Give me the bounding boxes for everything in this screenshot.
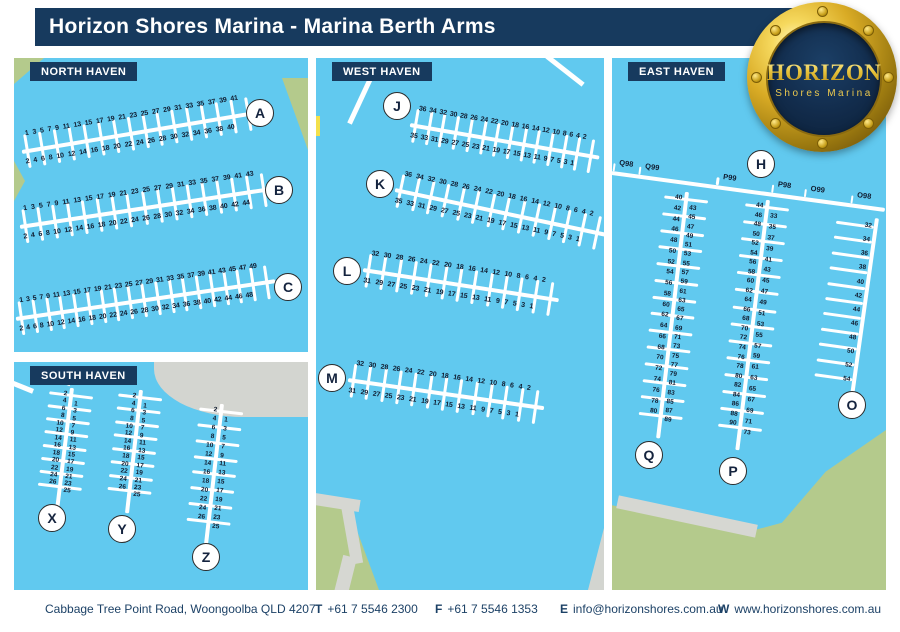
rivet-icon: [863, 25, 874, 36]
horizon-shores-logo: HORIZON Shores Marina: [747, 2, 897, 152]
page-title: Horizon Shores Marina - Marina Berth Arm…: [49, 15, 496, 39]
fax-value: +61 7 5546 1353: [447, 602, 537, 616]
rivet-icon: [817, 138, 828, 149]
breakwater: [347, 75, 374, 124]
rivet-icon: [817, 6, 828, 17]
panel-label-north-haven: NORTH HAVEN: [30, 62, 137, 81]
website-link[interactable]: www.horizonshores.com.au: [734, 602, 881, 616]
header-bar: Horizon Shores Marina - Marina Berth Arm…: [35, 8, 820, 46]
website-label: W: [718, 602, 729, 616]
land-area: [154, 362, 308, 417]
land-area: [588, 528, 604, 590]
fax-item: F+61 7 5546 1353: [435, 602, 538, 616]
rivet-icon: [770, 25, 781, 36]
email-item: Einfo@horizonshores.com.au: [560, 602, 723, 616]
rivet-icon: [751, 72, 762, 83]
panel-west-haven: WEST HAVEN: [316, 58, 604, 590]
land-area: [282, 78, 308, 150]
phone-item: T+61 7 5546 2300: [315, 602, 418, 616]
email-label: E: [560, 602, 568, 616]
address-text: Cabbage Tree Point Road, Woongoolba QLD …: [45, 602, 316, 616]
logo-wordmark: HORIZON: [767, 60, 882, 86]
panel-south-haven: SOUTH HAVEN: [14, 362, 308, 590]
map-mark: [316, 116, 320, 136]
panel-label-east-haven: EAST HAVEN: [628, 62, 725, 81]
phone-value: +61 7 5546 2300: [327, 602, 417, 616]
fax-label: F: [435, 602, 442, 616]
panel-label-south-haven: SOUTH HAVEN: [30, 366, 137, 385]
phone-label: T: [315, 602, 322, 616]
land-area: [14, 161, 25, 201]
email-link[interactable]: info@horizonshores.com.au: [573, 602, 723, 616]
footer: Cabbage Tree Point Road, Woongoolba QLD …: [0, 598, 900, 632]
logo-tagline: Shores Marina: [775, 88, 873, 99]
website-item: Wwww.horizonshores.com.au: [718, 602, 881, 616]
rivet-icon: [770, 118, 781, 129]
logo-inner-circle: HORIZON Shores Marina: [766, 21, 882, 137]
rivet-icon: [883, 72, 894, 83]
breakwater: [545, 58, 584, 87]
marina-map-page: Horizon Shores Marina - Marina Berth Arm…: [0, 0, 900, 632]
panel-label-west-haven: WEST HAVEN: [332, 62, 432, 81]
panel-north-haven: NORTH HAVEN: [14, 58, 308, 352]
